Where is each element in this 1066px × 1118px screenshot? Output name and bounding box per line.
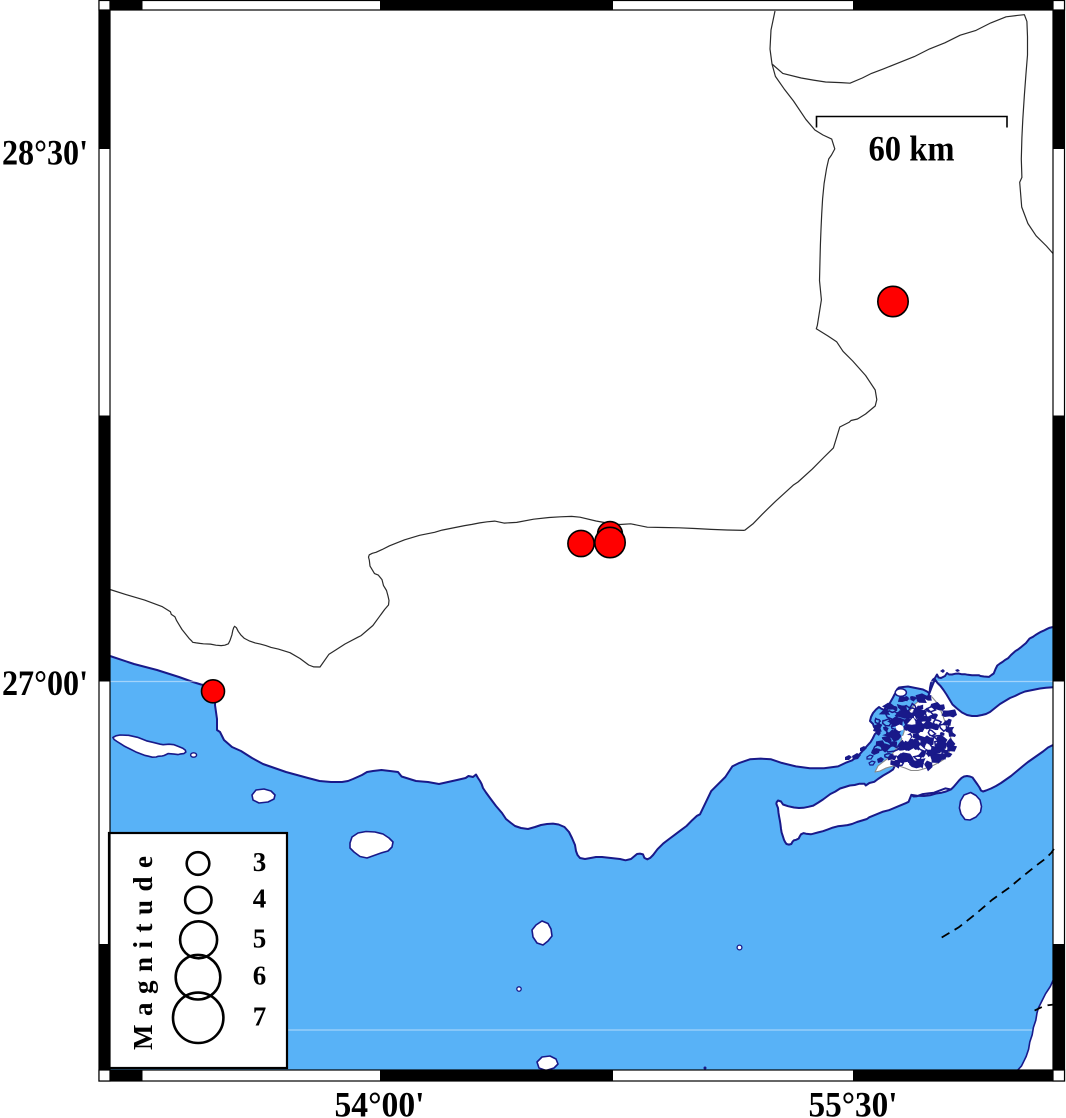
svg-text:7: 7	[253, 1001, 267, 1031]
svg-text:28°30': 28°30'	[2, 133, 88, 173]
svg-text:54°00': 54°00'	[335, 1085, 425, 1118]
svg-text:4: 4	[253, 884, 267, 914]
svg-text:55°30': 55°30'	[809, 1085, 898, 1118]
svg-text:60 km: 60 km	[869, 128, 955, 168]
svg-text:27°00': 27°00'	[2, 663, 88, 703]
svg-text:5: 5	[253, 923, 267, 953]
svg-text:3: 3	[253, 847, 267, 877]
svg-text:6: 6	[253, 961, 267, 991]
